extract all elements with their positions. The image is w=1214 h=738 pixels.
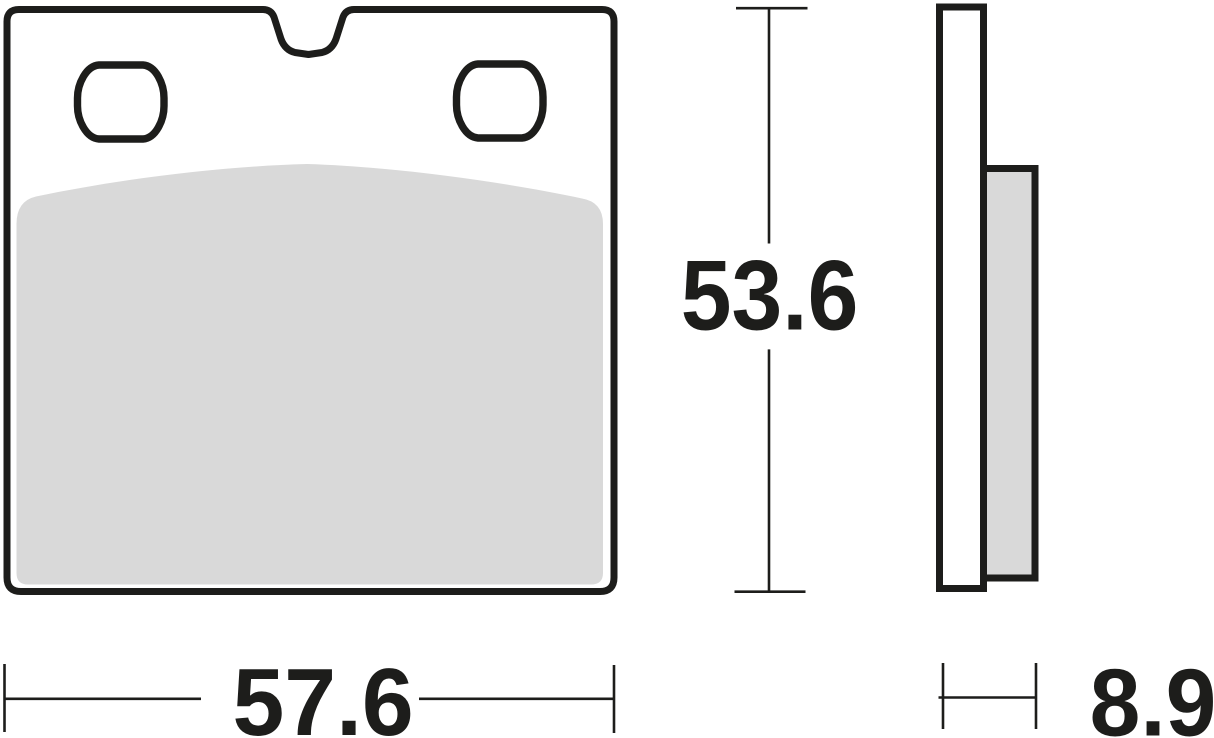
svg-text:57.6: 57.6	[232, 649, 413, 738]
svg-text:53.6: 53.6	[681, 241, 859, 351]
svg-text:8.9: 8.9	[1090, 648, 1214, 738]
